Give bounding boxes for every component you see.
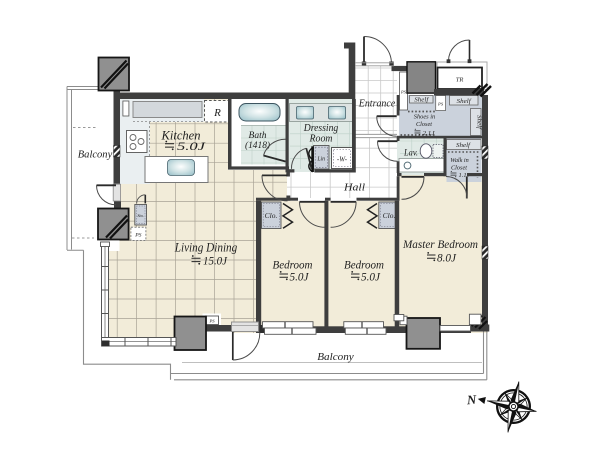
svg-text:N: N xyxy=(465,392,477,408)
svg-text:Sto.: Sto. xyxy=(137,213,144,218)
svg-text:TR: TR xyxy=(456,77,464,84)
svg-text:Shelf: Shelf xyxy=(457,98,472,105)
svg-text:Shelf: Shelf xyxy=(476,115,483,131)
svg-text:Room: Room xyxy=(309,133,333,145)
svg-text:Clo.: Clo. xyxy=(383,211,396,220)
svg-text:Lin: Lin xyxy=(316,157,325,163)
svg-text:PS: PS xyxy=(208,319,215,324)
svg-text:Bath: Bath xyxy=(249,131,267,141)
svg-text:Hall: Hall xyxy=(343,182,365,194)
svg-text:Bedroom: Bedroom xyxy=(344,258,384,272)
svg-text:8.0J: 8.0J xyxy=(437,252,457,264)
svg-text:Balcony: Balcony xyxy=(317,352,354,363)
svg-text:Entrance: Entrance xyxy=(358,98,396,110)
svg-text:Closet: Closet xyxy=(451,164,467,171)
svg-text:PS: PS xyxy=(400,90,407,95)
svg-text:Shelf: Shelf xyxy=(456,142,471,149)
svg-text:Lav.: Lav. xyxy=(403,149,418,159)
svg-text:-W-: -W- xyxy=(337,156,348,164)
svg-text:15.0J: 15.0J xyxy=(203,254,228,268)
svg-text:Bedroom: Bedroom xyxy=(273,258,313,272)
svg-text:PS: PS xyxy=(437,102,444,107)
svg-text:5.0J: 5.0J xyxy=(177,139,206,153)
svg-text:Shelf: Shelf xyxy=(414,97,429,104)
svg-text:5.0J: 5.0J xyxy=(361,271,381,283)
svg-text:5.0J: 5.0J xyxy=(290,271,310,283)
svg-text:Closet: Closet xyxy=(416,121,432,128)
svg-text:Balcony: Balcony xyxy=(78,149,113,161)
svg-text:PS: PS xyxy=(134,233,141,239)
svg-text:Living Dining: Living Dining xyxy=(174,240,238,255)
svg-text:Clo.: Clo. xyxy=(265,211,278,220)
svg-text:Shoes in: Shoes in xyxy=(414,113,436,120)
svg-text:Master Bedroom: Master Bedroom xyxy=(402,237,478,251)
svg-text:Walk in: Walk in xyxy=(450,157,469,164)
svg-text:R: R xyxy=(213,107,221,119)
